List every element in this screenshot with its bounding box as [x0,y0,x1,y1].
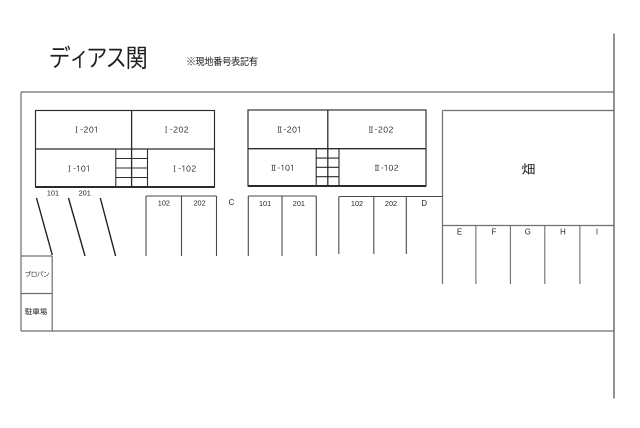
svg-text:G: G [525,227,531,236]
svg-text:C: C [229,198,235,207]
svg-text:H: H [560,227,566,236]
svg-text:201: 201 [293,199,305,208]
svg-text:101: 101 [47,188,59,197]
svg-text:101: 101 [259,199,271,208]
svg-text:E: E [457,227,462,236]
svg-text:F: F [492,227,497,236]
svg-text:202: 202 [385,199,397,208]
svg-text:102: 102 [351,199,363,208]
svg-text:201: 201 [79,188,91,197]
svg-text:D: D [421,199,427,208]
svg-text:I: I [596,227,598,236]
svg-text:202: 202 [194,199,206,208]
svg-text:102: 102 [158,199,170,208]
